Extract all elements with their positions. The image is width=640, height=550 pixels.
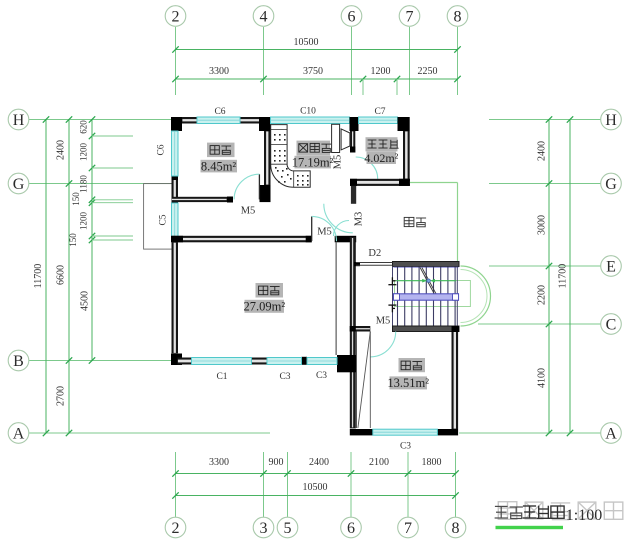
svg-text:2700: 2700 <box>56 386 67 406</box>
svg-text:C10: C10 <box>300 106 316 116</box>
svg-text:M5: M5 <box>376 315 391 326</box>
svg-text:1:100: 1:100 <box>566 507 602 524</box>
svg-text:C: C <box>606 317 617 334</box>
svg-text:1200: 1200 <box>371 66 391 77</box>
svg-text:C3: C3 <box>316 371 327 381</box>
svg-text:E: E <box>606 259 616 276</box>
svg-text:C3: C3 <box>400 442 411 452</box>
svg-text:C7: C7 <box>374 107 385 117</box>
svg-text:2: 2 <box>172 9 180 26</box>
svg-text:3000: 3000 <box>537 215 548 235</box>
svg-text:5: 5 <box>284 520 292 537</box>
svg-text:1200: 1200 <box>79 143 89 162</box>
svg-text:2400: 2400 <box>537 141 548 161</box>
svg-text:C1: C1 <box>216 372 227 382</box>
svg-text:3300: 3300 <box>209 66 229 77</box>
svg-text:4: 4 <box>260 9 268 26</box>
svg-text:8: 8 <box>452 520 460 537</box>
svg-text:27.09m²: 27.09m² <box>243 300 285 314</box>
svg-text:1200: 1200 <box>79 212 89 231</box>
svg-text:2100: 2100 <box>369 457 389 468</box>
svg-text:1180: 1180 <box>79 175 89 193</box>
svg-text:C3: C3 <box>279 372 290 382</box>
svg-text:M5: M5 <box>317 227 332 238</box>
svg-text:2400: 2400 <box>309 457 329 468</box>
svg-text:10500: 10500 <box>303 482 328 493</box>
svg-text:2250: 2250 <box>418 66 438 77</box>
svg-text:H: H <box>605 112 617 129</box>
svg-text:M3: M3 <box>354 212 365 227</box>
svg-text:2200: 2200 <box>537 285 548 305</box>
svg-text:8: 8 <box>454 9 462 26</box>
svg-text:C5: C5 <box>159 214 169 225</box>
svg-text:150: 150 <box>68 233 78 247</box>
svg-text:A: A <box>13 426 25 443</box>
svg-text:6: 6 <box>347 520 355 537</box>
svg-text:13.51m²: 13.51m² <box>387 376 429 390</box>
svg-text:10500: 10500 <box>294 37 319 48</box>
svg-text:H: H <box>13 112 25 129</box>
svg-text:2400: 2400 <box>56 140 67 160</box>
svg-text:150: 150 <box>71 192 81 206</box>
svg-text:G: G <box>605 176 617 193</box>
svg-text:3: 3 <box>260 520 268 537</box>
svg-text:900: 900 <box>269 457 284 468</box>
svg-text:8.45m²: 8.45m² <box>201 159 237 173</box>
svg-text:620: 620 <box>79 120 89 134</box>
svg-text:6: 6 <box>348 9 356 26</box>
svg-text:4500: 4500 <box>80 291 91 311</box>
svg-text:7: 7 <box>406 9 414 26</box>
svg-text:C6: C6 <box>214 107 225 117</box>
svg-text:2: 2 <box>172 520 180 537</box>
svg-text:7: 7 <box>404 520 412 537</box>
svg-text:G: G <box>13 176 25 193</box>
svg-text:6600: 6600 <box>56 265 67 285</box>
svg-text:M5: M5 <box>333 155 344 170</box>
svg-text:B: B <box>13 353 24 370</box>
svg-text:C6: C6 <box>157 144 167 155</box>
svg-text:3300: 3300 <box>209 457 229 468</box>
svg-text:A: A <box>605 426 617 443</box>
svg-text:4100: 4100 <box>537 368 548 388</box>
svg-text:3750: 3750 <box>303 66 323 77</box>
svg-text:D2: D2 <box>368 248 381 259</box>
svg-text:M5: M5 <box>241 206 256 217</box>
svg-text:11700: 11700 <box>558 264 569 289</box>
svg-text:4.02m²: 4.02m² <box>364 151 398 165</box>
svg-text:1800: 1800 <box>422 457 442 468</box>
svg-text:17.19m²: 17.19m² <box>292 155 334 169</box>
svg-text:11700: 11700 <box>33 264 44 289</box>
